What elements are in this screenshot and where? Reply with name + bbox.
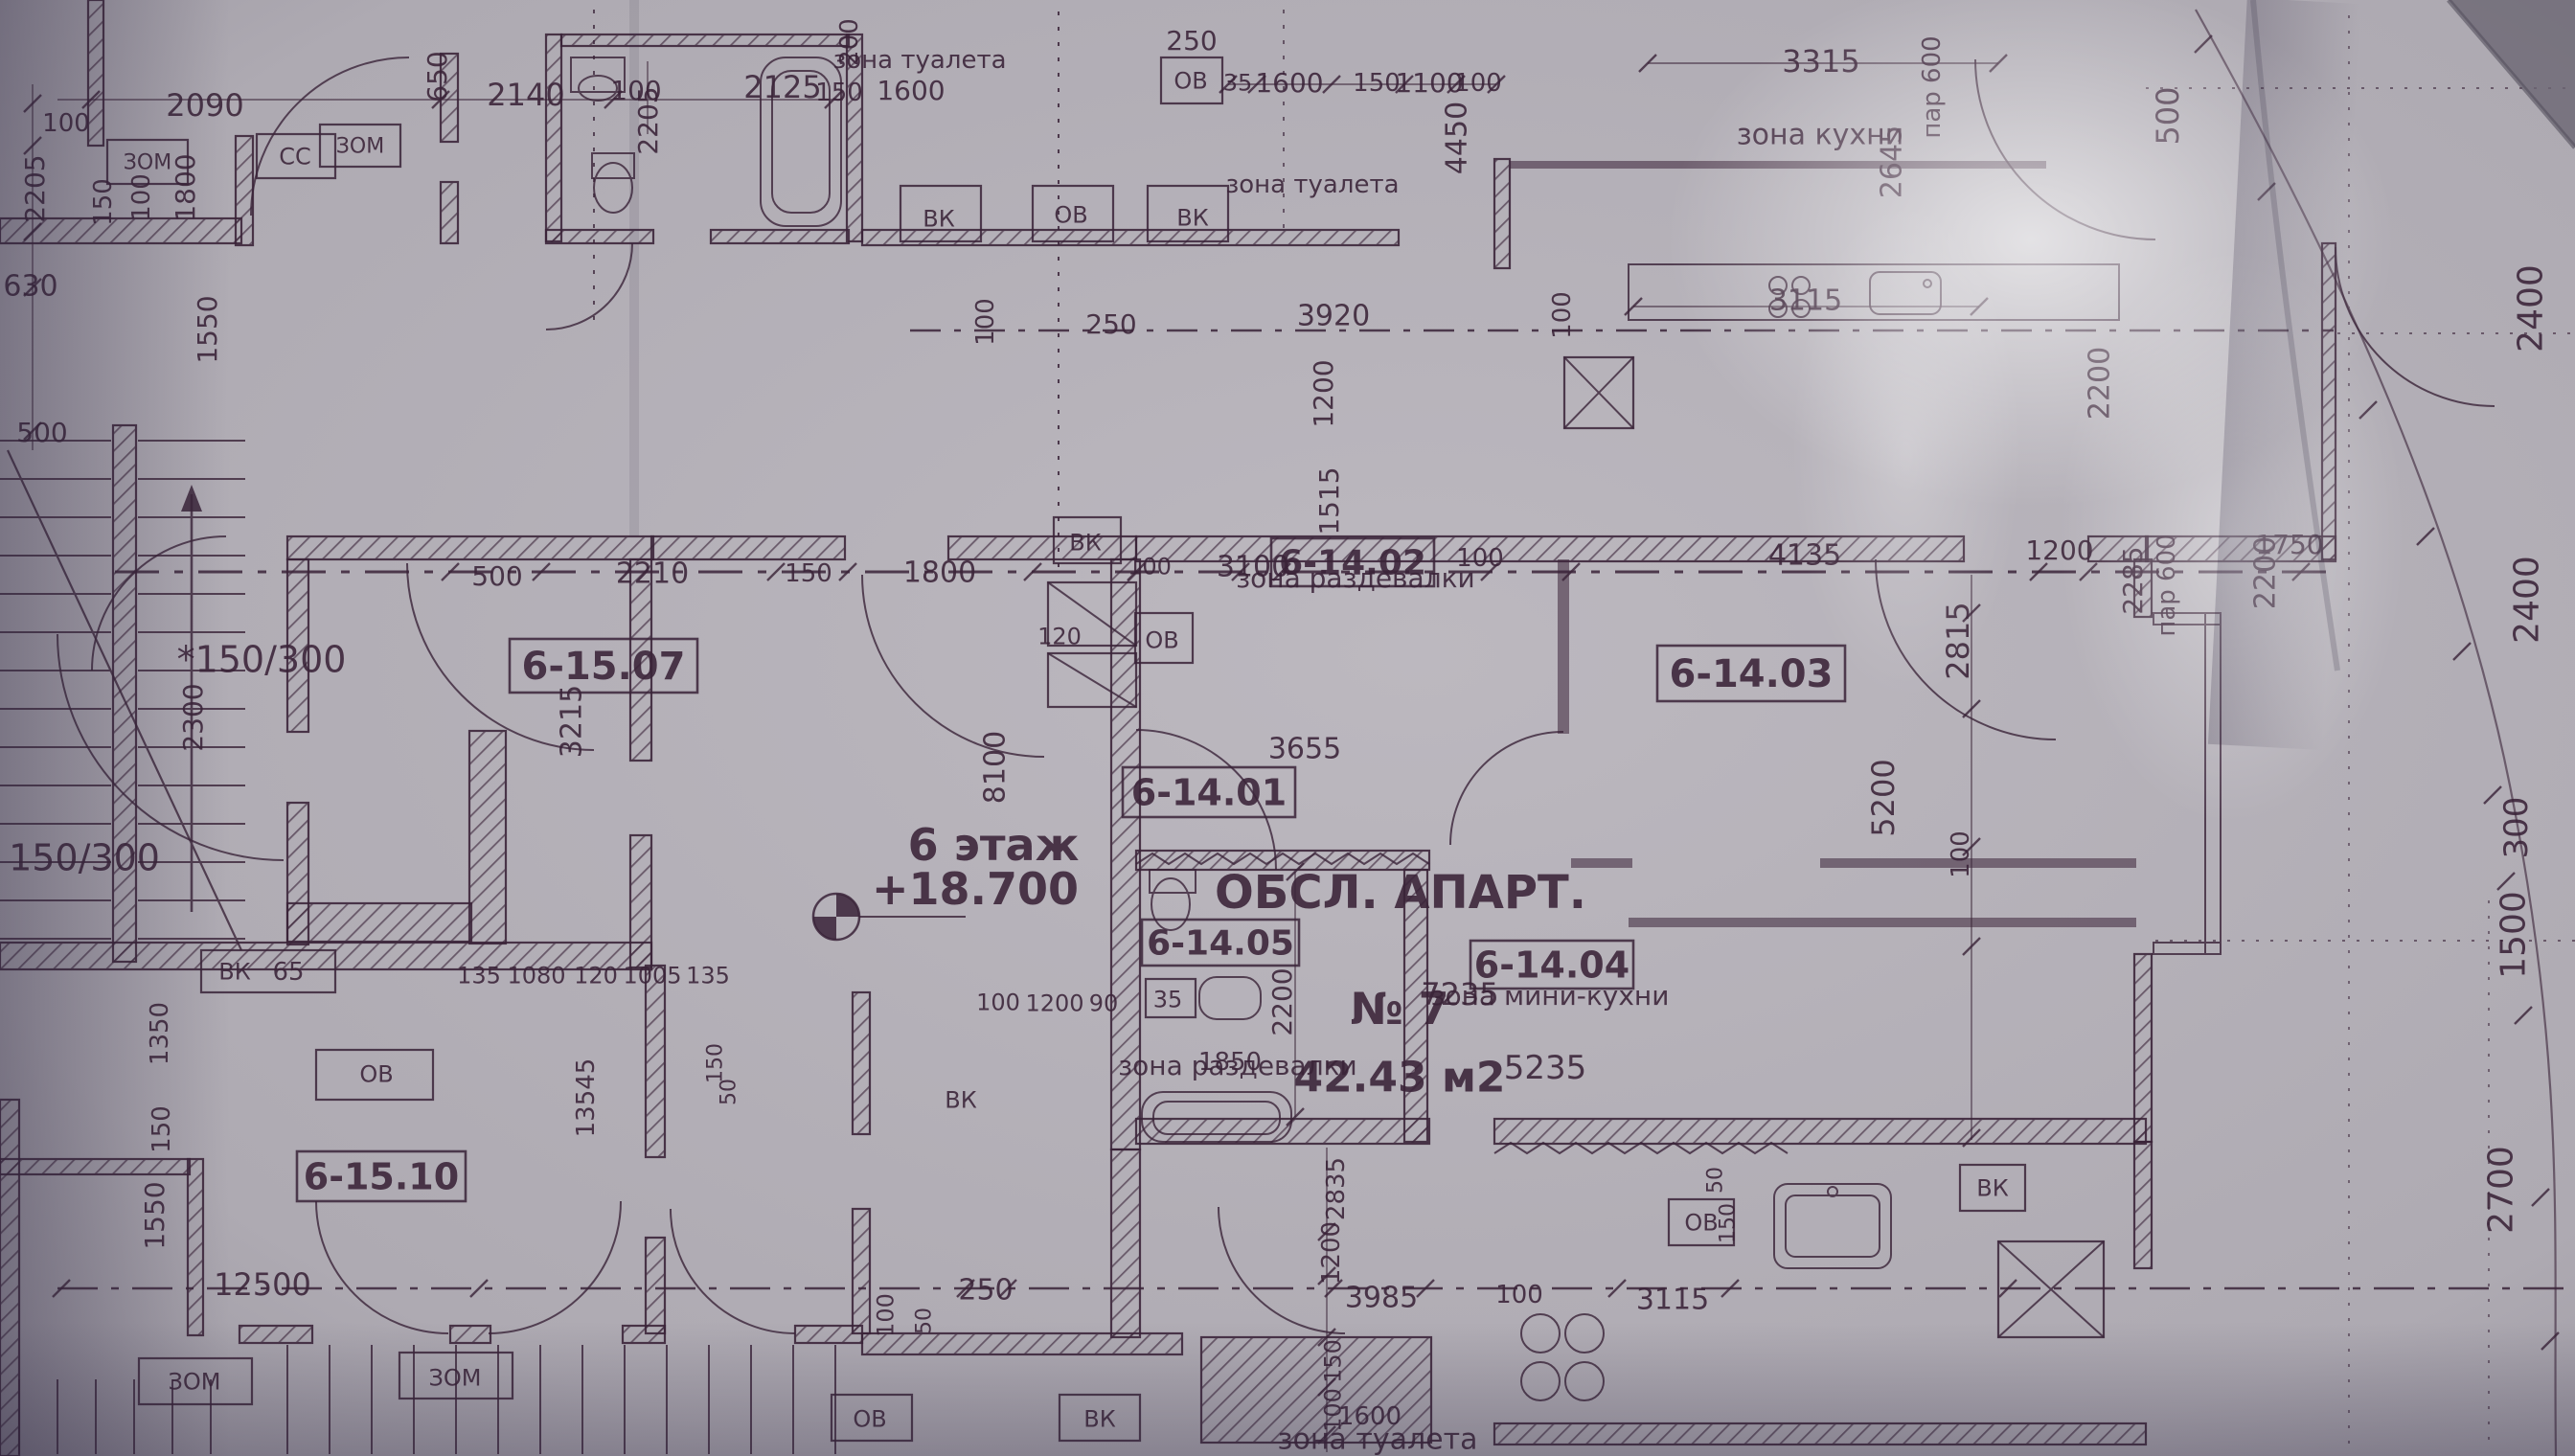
dim-1005: 1005 [623,962,681,989]
dim-100-f: 100 [971,298,1000,346]
dim-3985: 3985 [1345,1282,1418,1315]
shaft-vk-3: ВК [1069,529,1102,556]
dim-2200-c: 2200 [1266,967,1298,1035]
dim-1800-b: 1800 [903,557,976,590]
dim-4450: 4450 [1441,102,1474,174]
shaft-ov-3: ОВ [1145,626,1178,653]
dim-1200-d: 1200 [1317,1221,1346,1285]
shaft-vk-1: ВК [923,205,955,232]
dim-3215: 3215 [556,685,589,758]
dim-2400-b: 2400 [2508,556,2547,644]
dim-3115-a: 3115 [1636,1284,1709,1317]
shaft-ov-6: ОВ [1684,1209,1718,1236]
dim-50-c: 50 [1704,1167,1728,1194]
dim-300-r: 300 [2497,797,2536,859]
shaft-ov-1: ОВ [1054,201,1087,228]
dim-35-a: 35 [1223,69,1253,96]
dim-150-g: 150 [704,1043,728,1083]
dim-100-m: 100 [1495,1281,1543,1309]
dim-135-a: 135 [457,962,501,989]
dim-90: 90 [1089,990,1119,1016]
shaft-vk-6: ВК [1976,1174,2009,1201]
dim-120: 120 [1037,623,1082,649]
dim-1080: 1080 [507,962,565,989]
dim-1200-a: 1200 [1308,359,1339,427]
dim-1850: 1850 [1198,1048,1262,1077]
dim-100-g: 100 [1456,544,1504,573]
zone-mini-kitchen: зона мини-кухни [1431,980,1670,1012]
bottom-vignette [0,1322,2575,1456]
dim-150-a: 150 [815,79,863,107]
room-6-14-05: 6-14.05 [1147,924,1294,964]
dim-8100: 8100 [979,731,1013,804]
dim-100-j: 100 [1128,553,1172,580]
dim-250-b: 250 [1085,308,1136,340]
room-6-14-01: 6-14.01 [1131,771,1287,813]
dim-5200: 5200 [1865,759,1902,836]
dim-150-d: 150 [785,559,832,588]
apartment-type: ОБСЛ. АПАРТ. [1215,866,1586,920]
dim-2700-r: 2700 [2482,1146,2521,1234]
dim-100-i: 100 [976,989,1020,1015]
dim-1600-b: 1600 [1255,67,1323,99]
dim-500-b: 500 [471,560,522,592]
dim-2125: 2125 [743,69,821,105]
floor-plan-photo: 6-15.076-15.106-14.016-14.026-14.036-14.… [0,0,2575,1456]
dim-100-e: 100 [1548,291,1577,339]
dim-2210: 2210 [616,557,689,591]
room-6-14-03: 6-14.03 [1670,652,1834,696]
shaft-ov-4: ОВ [359,1060,393,1087]
dim-135-b: 135 [686,962,730,989]
dim-65: 65 [272,958,304,987]
dim-150-b: 150 [1353,69,1401,98]
shaft-vk-4: ВК [945,1086,977,1113]
dim-2400-a: 2400 [2512,264,2551,353]
dim-3920: 3920 [1297,300,1370,333]
level-label: +18.700 [872,863,1079,915]
dim-100-h: 100 [1947,830,1975,878]
dim-250-c: 250 [958,1274,1013,1308]
dim-150-h: 150 [1717,1203,1741,1243]
dim-1200-c: 1200 [1025,990,1083,1016]
left-vignette [0,0,230,1456]
room-6-15-10: 6-15.10 [304,1155,459,1197]
dim-1100: 1100 [1395,67,1463,99]
dim-650: 650 [422,51,453,102]
room-6-15-07: 6-15.07 [522,645,686,689]
shaft-ov-2: ОВ [1174,67,1207,94]
shaft-cc: СС [279,143,311,170]
dim-5235: 5235 [1504,1049,1587,1087]
dim-1600-a: 1600 [877,75,945,106]
dim-100-b: 100 [1454,69,1502,98]
dim-120-b: 120 [574,962,618,989]
dim-3655: 3655 [1268,733,1341,766]
dim-1515: 1515 [1313,466,1345,535]
dim-2140: 2140 [487,77,564,113]
plan-svg: 6-15.076-15.106-14.016-14.026-14.036-14.… [0,0,2575,1456]
dim-35-b: 35 [1153,986,1183,1012]
dim-2835: 2835 [1322,1157,1351,1220]
dim-200: 200 [835,18,864,66]
shaft-zom-2: ЗОМ [336,135,384,159]
zone-toilet-mid: зона туалета [1225,171,1399,199]
dim-250-a: 250 [1166,25,1217,57]
dim-3100: 3100 [1217,551,1289,584]
dim-1500-r: 1500 [2495,891,2534,979]
dim-13545: 13545 [572,1058,601,1138]
shaft-vk-2: ВК [1176,204,1209,231]
